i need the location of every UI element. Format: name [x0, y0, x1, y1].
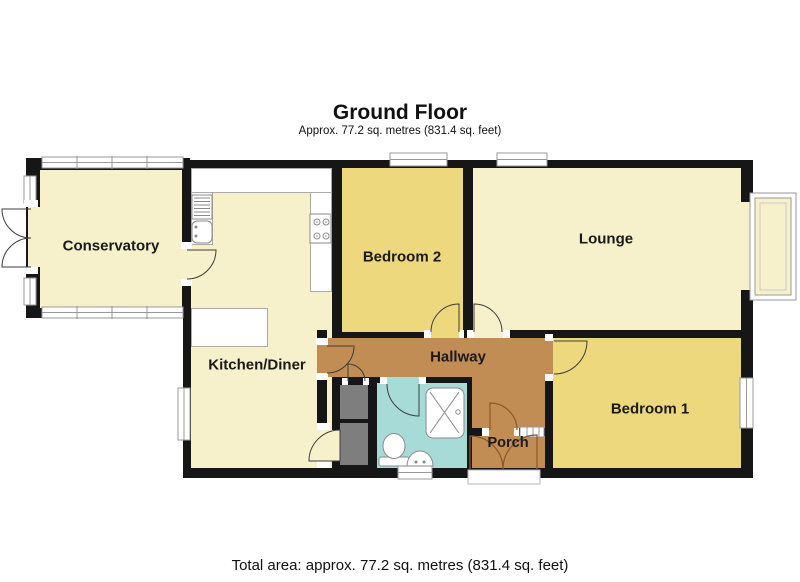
cupboard-lower [340, 423, 368, 465]
door-gap-french-doors [28, 207, 40, 267]
floor-plan-page: Ground Floor Approx. 77.2 sq. metres (83… [0, 0, 800, 582]
total-area-text: Total area: approx. 77.2 sq. metres (831… [0, 557, 800, 574]
room-bathroom [377, 383, 467, 468]
kitchen-island [191, 308, 268, 347]
door-gap-bathroom [387, 377, 419, 383]
door-gap-cupboard-kitchen [317, 430, 340, 461]
door-gap-conservatory-kitchen [182, 249, 191, 279]
label-hallway: Hallway [430, 349, 486, 366]
kitchen-counter-hob-run [310, 192, 332, 292]
door-gap-lounge [474, 330, 503, 338]
kitchen-counter-top [191, 168, 332, 193]
label-bedroom1: Bedroom 1 [611, 401, 689, 418]
room-hall-corridor [472, 377, 545, 468]
porch-wall-stub [472, 428, 484, 436]
bay-window [750, 193, 796, 300]
label-porch: Porch [487, 435, 528, 451]
page-title: Ground Floor [0, 101, 800, 125]
bay-window-opening [741, 202, 753, 290]
door-gap-bedroom1 [545, 341, 553, 374]
kitchen-counter-sink-run [191, 192, 213, 245]
label-conservatory: Conservatory [63, 238, 160, 255]
cupboard-upper [340, 385, 368, 419]
label-lounge: Lounge [579, 231, 633, 248]
room-lounge [473, 168, 741, 330]
door-gap-kitchen-hallway [317, 345, 327, 373]
label-bedroom2: Bedroom 2 [363, 249, 441, 266]
door-gap-bedroom2 [431, 330, 459, 338]
page-subtitle: Approx. 77.2 sq. metres (831.4 sq. feet) [0, 125, 800, 137]
label-kitchen-diner: Kitchen/Diner [208, 357, 306, 374]
